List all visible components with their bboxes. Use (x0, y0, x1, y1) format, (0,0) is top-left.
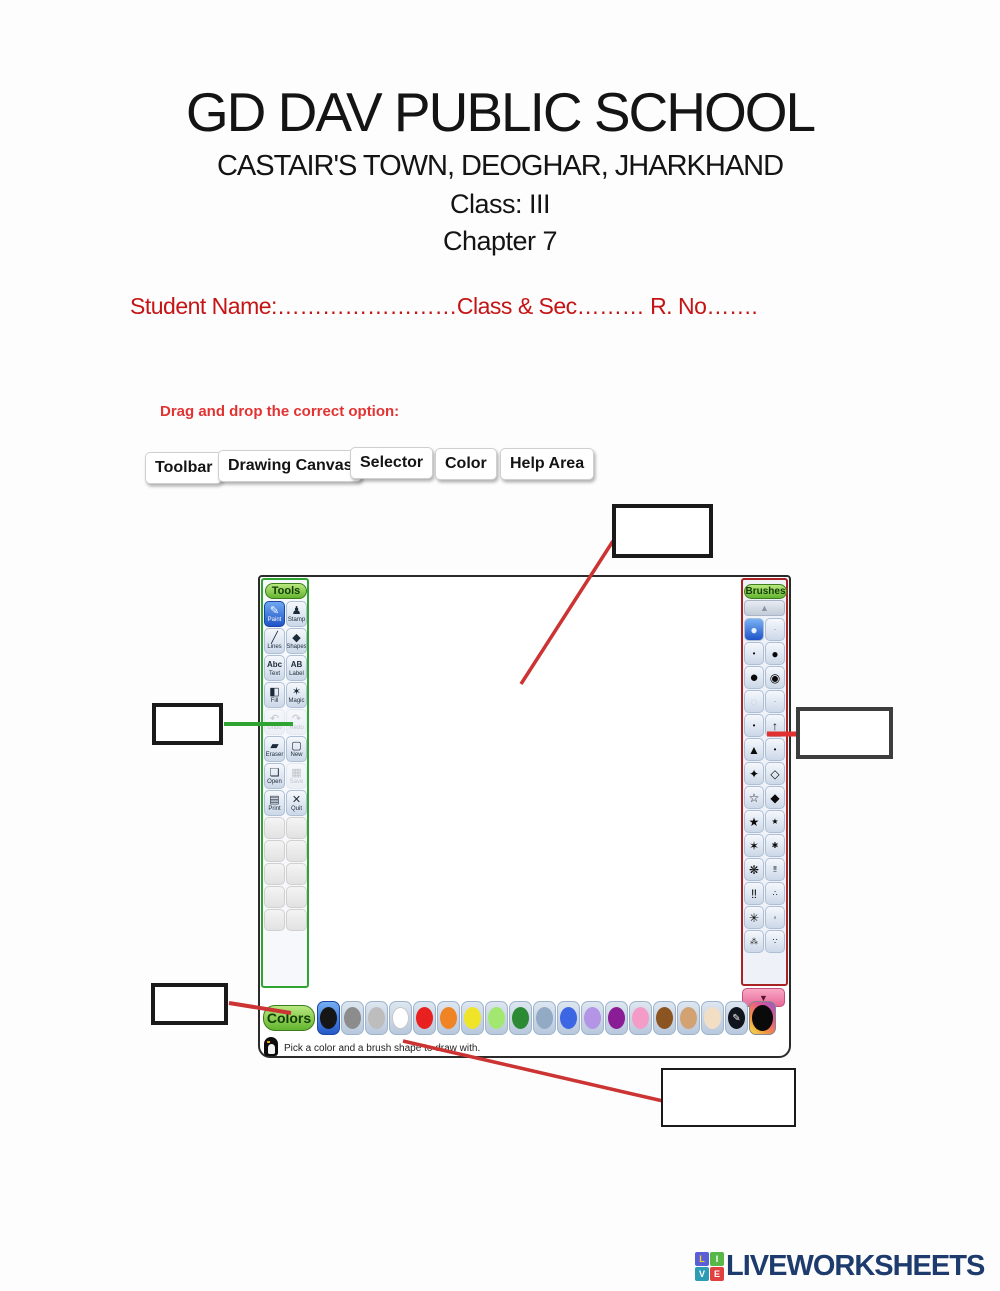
drop-target-color[interactable] (151, 983, 228, 1025)
tan-blob (680, 1007, 697, 1029)
liveworksheets-logo-icon: LIVE (695, 1252, 724, 1281)
ring-dot-brush-icon: ◉ (765, 666, 785, 689)
save-icon: ▦ (291, 767, 301, 779)
logo-block-v: V (695, 1267, 709, 1281)
dot-brush-icon: ● (765, 642, 785, 665)
brushes-panel-title: Brushes (744, 584, 787, 599)
asterisk-brush-icon: ✱ (765, 834, 785, 857)
arrow-brush-icon: ↑ (765, 714, 785, 737)
help-area-text: Pick a color and a brush shape to draw w… (284, 1043, 480, 1056)
current-color-blob (752, 1005, 773, 1031)
tuxpaint-colors-bar: Colors ✎ (263, 997, 776, 1039)
large-circle-brush-icon: ● (744, 666, 764, 689)
redo-icon: ↷ (292, 713, 301, 725)
drop-target-selector[interactable] (796, 707, 893, 759)
silver-blob (368, 1007, 385, 1029)
small-dot-brush-icon: • (765, 738, 785, 761)
empty-tool-slot (286, 817, 307, 839)
tools-panel-title: Tools (265, 583, 307, 599)
yellow-blob (464, 1007, 481, 1029)
color-swatch-brown (653, 1001, 676, 1035)
tool-label: Eraser (266, 752, 284, 759)
fuzzy-circle-brush-icon: ◌ (744, 690, 764, 713)
tool-label: Quit (291, 806, 302, 813)
option-chip-toolbar[interactable]: Toolbar (145, 452, 222, 484)
rainbow-picker-blob: ✎ (728, 1007, 745, 1029)
empty-tool-slot (264, 817, 285, 839)
color-swatches: ✎ (317, 1001, 776, 1035)
color-swatch-rainbow-picker: ✎ (725, 1001, 748, 1035)
hollow-dot-brush-icon: ◦ (765, 906, 785, 929)
worksheet-page: GD DAV PUBLIC SCHOOL CASTAIR'S TOWN, DEO… (0, 0, 1000, 1291)
school-title: GD DAV PUBLIC SCHOOL (0, 84, 1000, 142)
tool-button-open: ❏Open (264, 763, 285, 789)
tool-button-fill: ◧Fill (264, 682, 285, 708)
school-address: CASTAIR'S TOWN, DEOGHAR, JHARKHAND (0, 150, 1000, 183)
tool-button-text: AbcText (264, 655, 285, 681)
red-blob (416, 1007, 433, 1029)
logo-block-i: I (710, 1252, 724, 1266)
small-dot-brush-icon: • (744, 714, 764, 737)
tool-label: Shapes (286, 644, 306, 651)
tool-button-label: ABLabel (286, 655, 307, 681)
empty-tool-slot (264, 886, 285, 908)
brown-blob (656, 1007, 673, 1029)
liveworksheets-logo-text: LIVEWORKSHEETS (726, 1250, 984, 1283)
scatter-brush-icon: ⁂ (744, 930, 764, 953)
tux-penguin-icon (264, 1037, 278, 1056)
colors-panel-title: Colors (263, 1005, 315, 1031)
shapes-icon: ◆ (292, 632, 300, 644)
tuxpaint-selector-panel: Brushes ▲ ●·•●●◉◌·•↑▲•✦◇☆◆★★✶✱❋‼‼∴✳◦⁂∵ (741, 578, 788, 986)
small-dot-brush-icon: • (744, 642, 764, 665)
new-icon: ▢ (291, 740, 301, 752)
fill-icon: ◧ (269, 686, 279, 698)
tool-button-stamp: ♟Stamp (286, 601, 307, 627)
white-blob (392, 1007, 409, 1029)
color-swatch-orange (437, 1001, 460, 1035)
tool-button-shapes: ◆Shapes (286, 628, 307, 654)
liveworksheets-logo[interactable]: LIVE LIVEWORKSHEETS (695, 1250, 984, 1283)
tool-button-new: ▢New (286, 736, 307, 762)
tool-button-redo: ↷Redo (286, 709, 307, 735)
color-swatch-black (317, 1001, 340, 1035)
footprints-brush-icon: ‼ (744, 882, 764, 905)
paintbrush-icon: ✎ (270, 605, 279, 617)
color-swatch-silver (365, 1001, 388, 1035)
label-icon: AB (291, 659, 303, 671)
magic-icon: ✶ (292, 686, 301, 698)
drop-target-help-area[interactable] (661, 1068, 796, 1127)
tool-label: Fill (271, 698, 279, 705)
star-brush-icon: ★ (744, 810, 764, 833)
color-swatch-beige (701, 1001, 724, 1035)
brushes-grid: ●·•●●◉◌·•↑▲•✦◇☆◆★★✶✱❋‼‼∴✳◦⁂∵ (744, 618, 785, 953)
tool-label: Print (268, 806, 280, 813)
lines-icon: ╱ (271, 632, 278, 644)
gray-blob (344, 1007, 361, 1029)
empty-tool-slot (286, 886, 307, 908)
tool-label: Save (290, 779, 304, 786)
tuxpaint-toolbar-panel: Tools ✎Paint♟Stamp╱Lines◆ShapesAbcTextAB… (261, 578, 309, 988)
color-swatch-tan (677, 1001, 700, 1035)
diamond-brush-icon: ◆ (765, 786, 785, 809)
color-swatch-light-green (485, 1001, 508, 1035)
color-swatch-lavender (581, 1001, 604, 1035)
tool-button-eraser: ▰Eraser (264, 736, 285, 762)
tool-label: Open (267, 779, 282, 786)
tool-label: Undo (267, 725, 281, 732)
tool-label: Magic (288, 698, 304, 705)
stamp-icon: ♟ (292, 605, 302, 617)
round-brush-icon: ● (744, 618, 764, 641)
tiny-dot-brush-icon: · (765, 690, 785, 713)
chapter-line: Chapter 7 (0, 226, 1000, 257)
dots-brush-icon: ∵ (765, 930, 785, 953)
option-chip-selector[interactable]: Selector (350, 447, 433, 479)
drop-target-drawing-canvas[interactable] (612, 504, 713, 558)
color-swatch-yellow (461, 1001, 484, 1035)
color-swatch-purple (605, 1001, 628, 1035)
empty-tool-slot (264, 909, 285, 931)
green-blob (512, 1007, 529, 1029)
splat-brush-icon: ✳ (744, 906, 764, 929)
tools-grid: ✎Paint♟Stamp╱Lines◆ShapesAbcTextABLabel◧… (264, 601, 306, 931)
class-line: Class: III (0, 189, 1000, 220)
empty-tool-slot (264, 840, 285, 862)
color-swatch-green (509, 1001, 532, 1035)
tool-button-print: ▤Print (264, 790, 285, 816)
pentagon-brush-icon: ◇ (765, 762, 785, 785)
color-swatch-pink (629, 1001, 652, 1035)
color-swatch-blue (557, 1001, 580, 1035)
triangle-brush-icon: ▲ (744, 738, 764, 761)
drop-target-toolbar[interactable] (152, 703, 223, 745)
tool-label: Label (289, 671, 304, 678)
tool-label: Lines (267, 644, 281, 651)
orange-blob (440, 1007, 457, 1029)
tool-label: New (290, 752, 302, 759)
small-star-brush-icon: ★ (765, 810, 785, 833)
logo-block-l: L (695, 1252, 709, 1266)
six-point-star-brush-icon: ✶ (744, 834, 764, 857)
tool-button-lines: ╱Lines (264, 628, 285, 654)
color-swatch-gray (341, 1001, 364, 1035)
brushes-scroll-up-icon: ▲ (744, 600, 785, 616)
paw-prints-brush-icon: ∴ (765, 882, 785, 905)
tool-button-paint: ✎Paint (264, 601, 285, 627)
tuxpaint-screenshot: Tools ✎Paint♟Stamp╱Lines◆ShapesAbcTextAB… (258, 575, 791, 1058)
logo-block-e: E (710, 1267, 724, 1281)
drag-drop-instruction: Drag and drop the correct option: (160, 403, 399, 420)
pink-blob (632, 1007, 649, 1029)
color-swatch-gray-blue (533, 1001, 556, 1035)
tool-button-quit: ✕Quit (286, 790, 307, 816)
tool-label: Stamp (288, 617, 305, 624)
option-chip-color[interactable]: Color (435, 448, 497, 480)
tool-button-save: ▦Save (286, 763, 307, 789)
color-swatch-red (413, 1001, 436, 1035)
color-swatch-white (389, 1001, 412, 1035)
lavender-blob (584, 1007, 601, 1029)
purple-blob (608, 1007, 625, 1029)
color-swatch-current-color (749, 1001, 776, 1035)
option-chip-help-area[interactable]: Help Area (500, 448, 594, 480)
light-green-blob (488, 1007, 505, 1029)
eraser-icon: ▰ (270, 740, 278, 752)
tool-label: Paint (268, 617, 282, 624)
empty-tool-slot (286, 863, 307, 885)
star-outline-brush-icon: ☆ (744, 786, 764, 809)
tool-button-undo: ↶Undo (264, 709, 285, 735)
tool-label: Text (269, 671, 280, 678)
undo-icon: ↶ (270, 713, 279, 725)
empty-tool-slot (286, 909, 307, 931)
option-chip-drawing-canvas[interactable]: Drawing Canvas (218, 450, 362, 482)
open-icon: ❏ (270, 767, 280, 779)
empty-tool-slot (264, 863, 285, 885)
blob-brush-icon: ✦ (744, 762, 764, 785)
tool-button-magic: ✶Magic (286, 682, 307, 708)
gray-blue-blob (536, 1007, 553, 1029)
worksheet-header: GD DAV PUBLIC SCHOOL CASTAIR'S TOWN, DEO… (0, 84, 1000, 257)
quit-icon: ✕ (292, 794, 301, 806)
footprints-brush-icon: ‼ (765, 858, 785, 881)
black-blob (320, 1007, 337, 1029)
empty-tool-slot (286, 840, 307, 862)
tuxpaint-help-area: Pick a color and a brush shape to draw w… (264, 1041, 480, 1056)
blue-blob (560, 1007, 577, 1029)
text-icon: Abc (267, 659, 282, 671)
print-icon: ▤ (269, 794, 279, 806)
student-name-line: Student Name:……………………Class & Sec……… R. N… (130, 293, 757, 320)
tool-label: Redo (289, 725, 303, 732)
beige-blob (704, 1007, 721, 1029)
flower-brush-icon: ❋ (744, 858, 764, 881)
tiny-dot-brush-icon: · (765, 618, 785, 641)
